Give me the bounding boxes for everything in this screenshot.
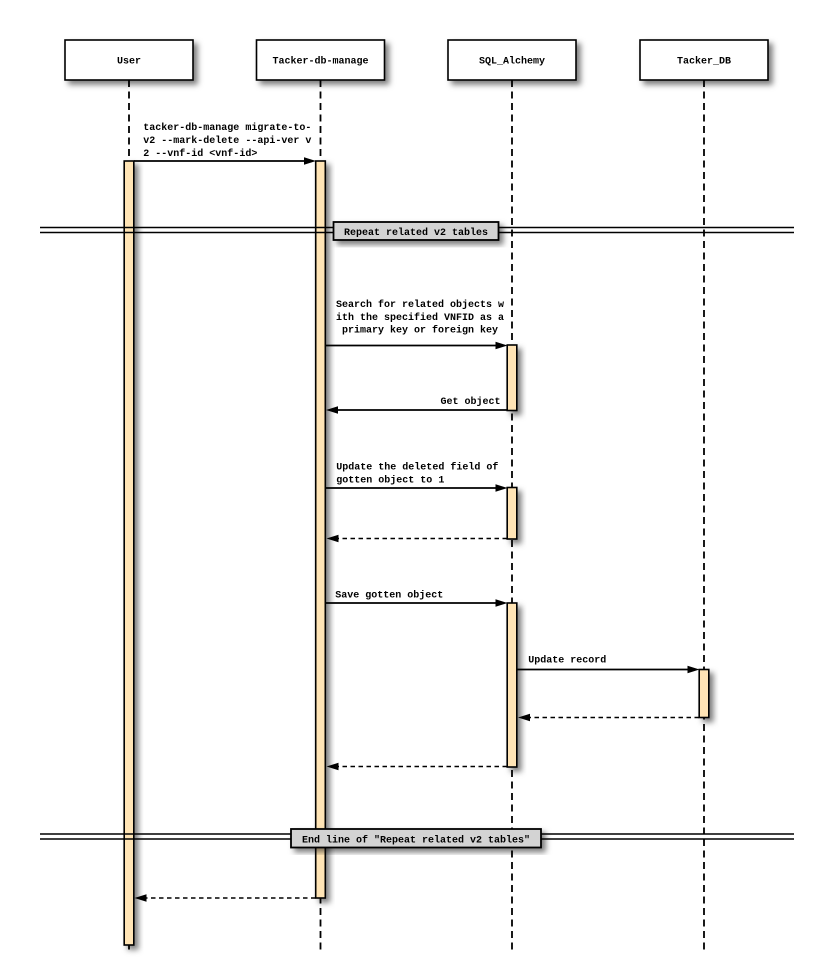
svg-text:Update the deleted field of: Update the deleted field of — [336, 462, 498, 474]
svg-text:2 --vnf-id <vnf-id>: 2 --vnf-id <vnf-id> — [143, 148, 257, 160]
svg-text:Tacker_DB: Tacker_DB — [677, 56, 731, 68]
svg-text:End line of "Repeat related v2: End line of "Repeat related v2 tables" — [302, 835, 530, 847]
svg-text:ith the specified VNFID as a: ith the specified VNFID as a — [336, 312, 504, 324]
svg-text:Get object: Get object — [440, 396, 500, 408]
svg-text:v2 --mark-delete --api-ver v: v2 --mark-delete --api-ver v — [143, 135, 311, 147]
svg-text:primary key or foreign key: primary key or foreign key — [342, 325, 498, 337]
svg-text:gotten object to 1: gotten object to 1 — [336, 475, 444, 487]
svg-text:SQL_Alchemy: SQL_Alchemy — [479, 56, 545, 68]
svg-text:User: User — [117, 57, 141, 68]
svg-text:Save gotten object: Save gotten object — [335, 590, 443, 602]
svg-text:Update record: Update record — [528, 655, 606, 667]
svg-text:Search for related objects w: Search for related objects w — [336, 299, 504, 311]
svg-text:Tacker-db-manage: Tacker-db-manage — [272, 56, 368, 68]
svg-text:tacker-db-manage migrate-to-: tacker-db-manage migrate-to- — [143, 122, 311, 134]
svg-text:Repeat related v2 tables: Repeat related v2 tables — [344, 227, 488, 239]
